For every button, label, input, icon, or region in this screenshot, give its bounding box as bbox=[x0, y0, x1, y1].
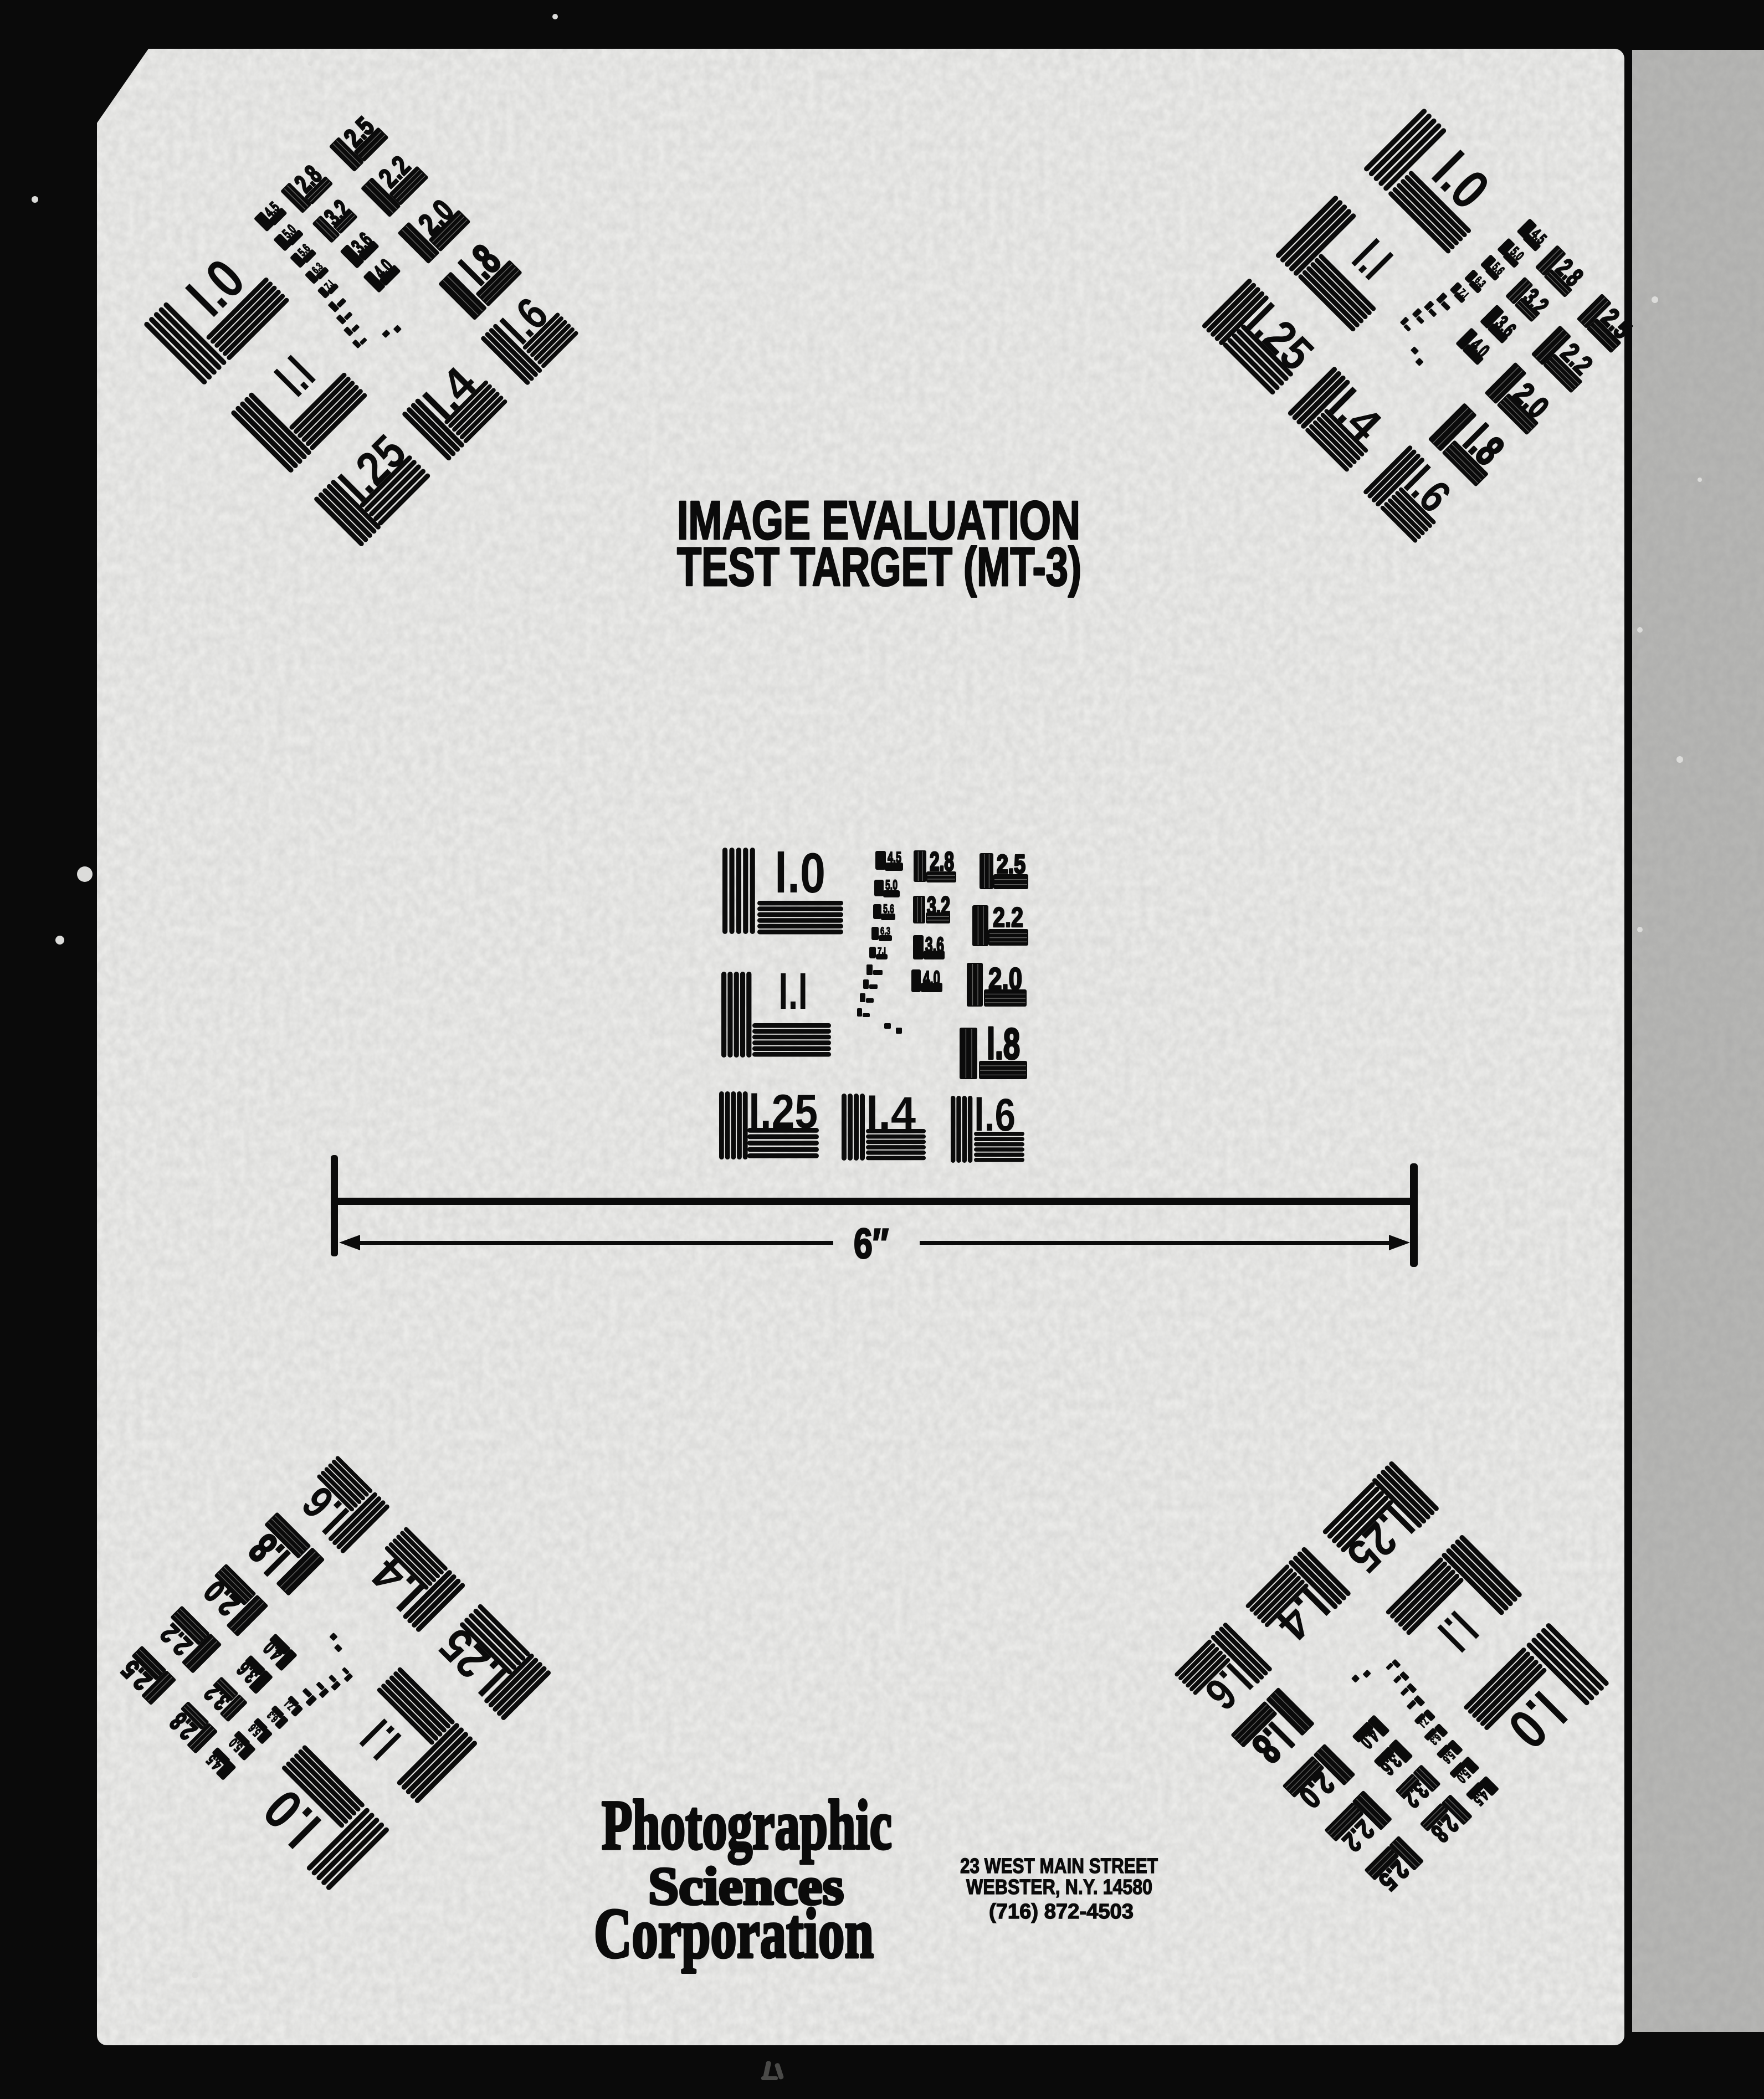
svg-text:6″: 6″ bbox=[854, 1220, 889, 1267]
svg-text:WEBSTER, N.Y. 14580: WEBSTER, N.Y. 14580 bbox=[966, 1876, 1152, 1899]
svg-text:TEST TARGET (MT-3): TEST TARGET (MT-3) bbox=[677, 536, 1081, 597]
svg-text:(716) 872-4503: (716) 872-4503 bbox=[989, 1900, 1134, 1923]
svg-text:23 WEST MAIN STREET: 23 WEST MAIN STREET bbox=[960, 1855, 1158, 1878]
svg-text:Photographic: Photographic bbox=[602, 1787, 892, 1864]
svg-text:Corporation: Corporation bbox=[594, 1894, 874, 1973]
